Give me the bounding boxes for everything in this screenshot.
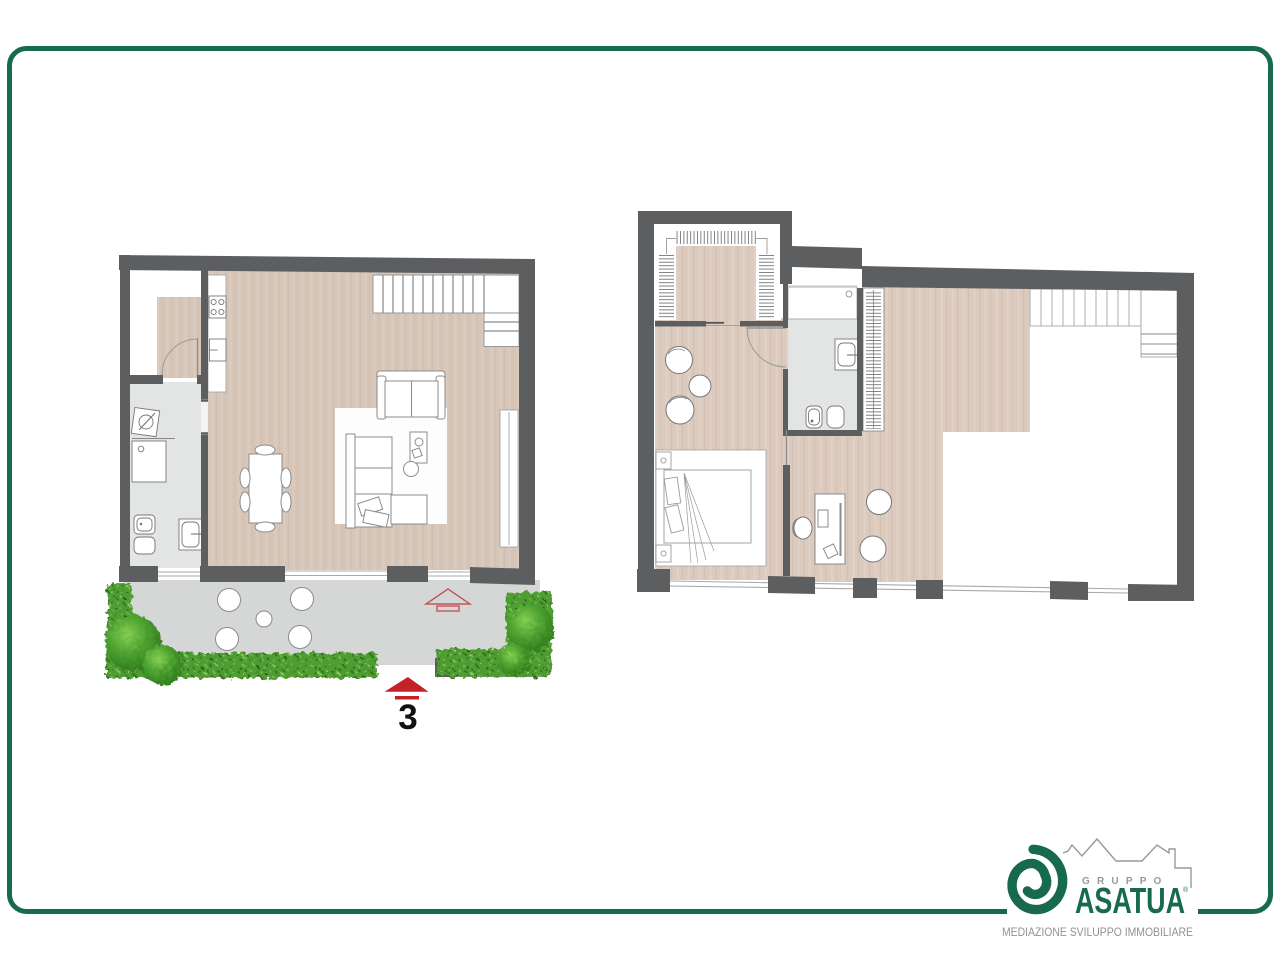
- svg-text:®: ®: [1183, 886, 1189, 894]
- svg-text:3: 3: [398, 698, 417, 737]
- svg-text:MEDIAZIONE SVILUPPO IMMOBILIAR: MEDIAZIONE SVILUPPO IMMOBILIARE: [1002, 925, 1193, 939]
- svg-text:ASATUA: ASATUA: [1075, 880, 1185, 921]
